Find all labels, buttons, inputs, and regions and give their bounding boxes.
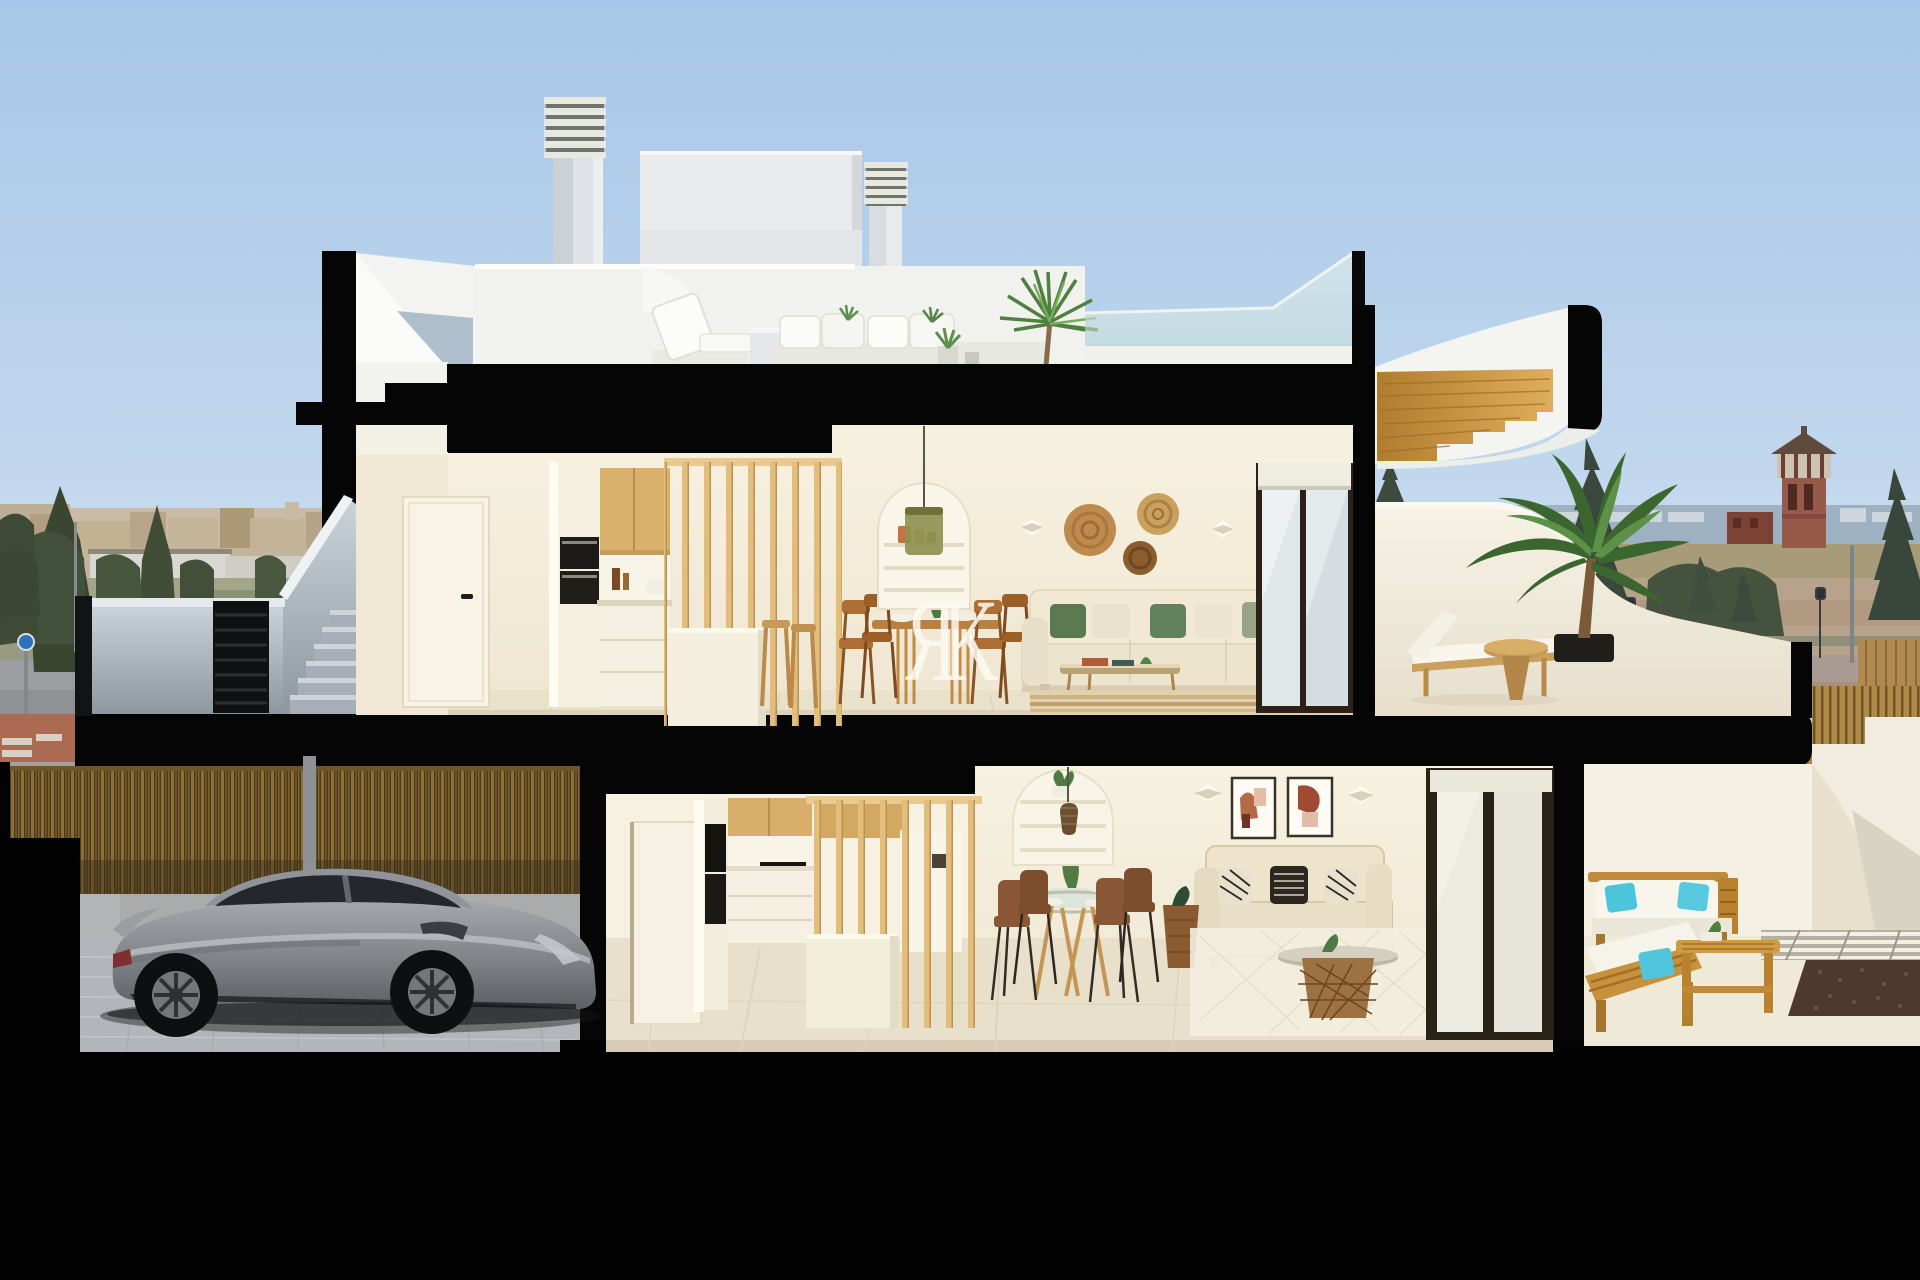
svg-text:K: K [943, 575, 999, 706]
